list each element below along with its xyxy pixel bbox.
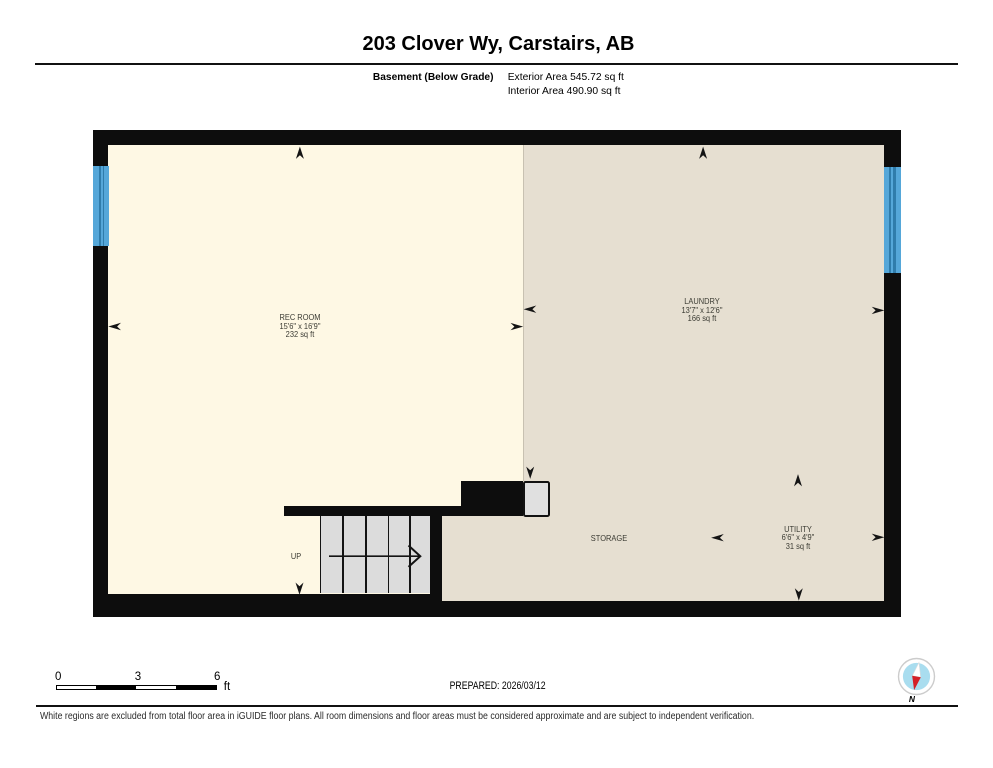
svg-text:N: N — [909, 694, 916, 704]
